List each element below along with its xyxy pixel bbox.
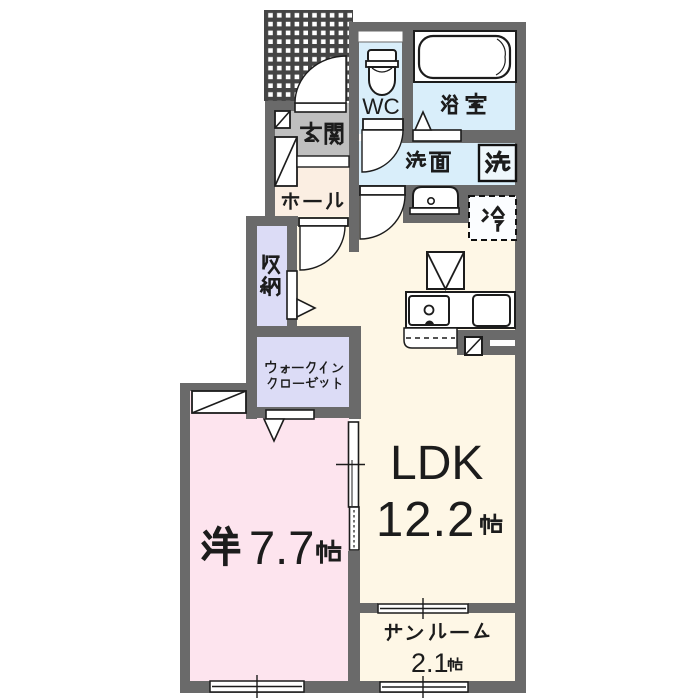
svg-text:7.7: 7.7 xyxy=(249,521,314,574)
svg-text:LDK: LDK xyxy=(390,437,483,490)
svg-text:2.1: 2.1 xyxy=(411,648,449,678)
svg-text:12.2: 12.2 xyxy=(376,493,475,547)
svg-text:WC: WC xyxy=(362,94,400,119)
